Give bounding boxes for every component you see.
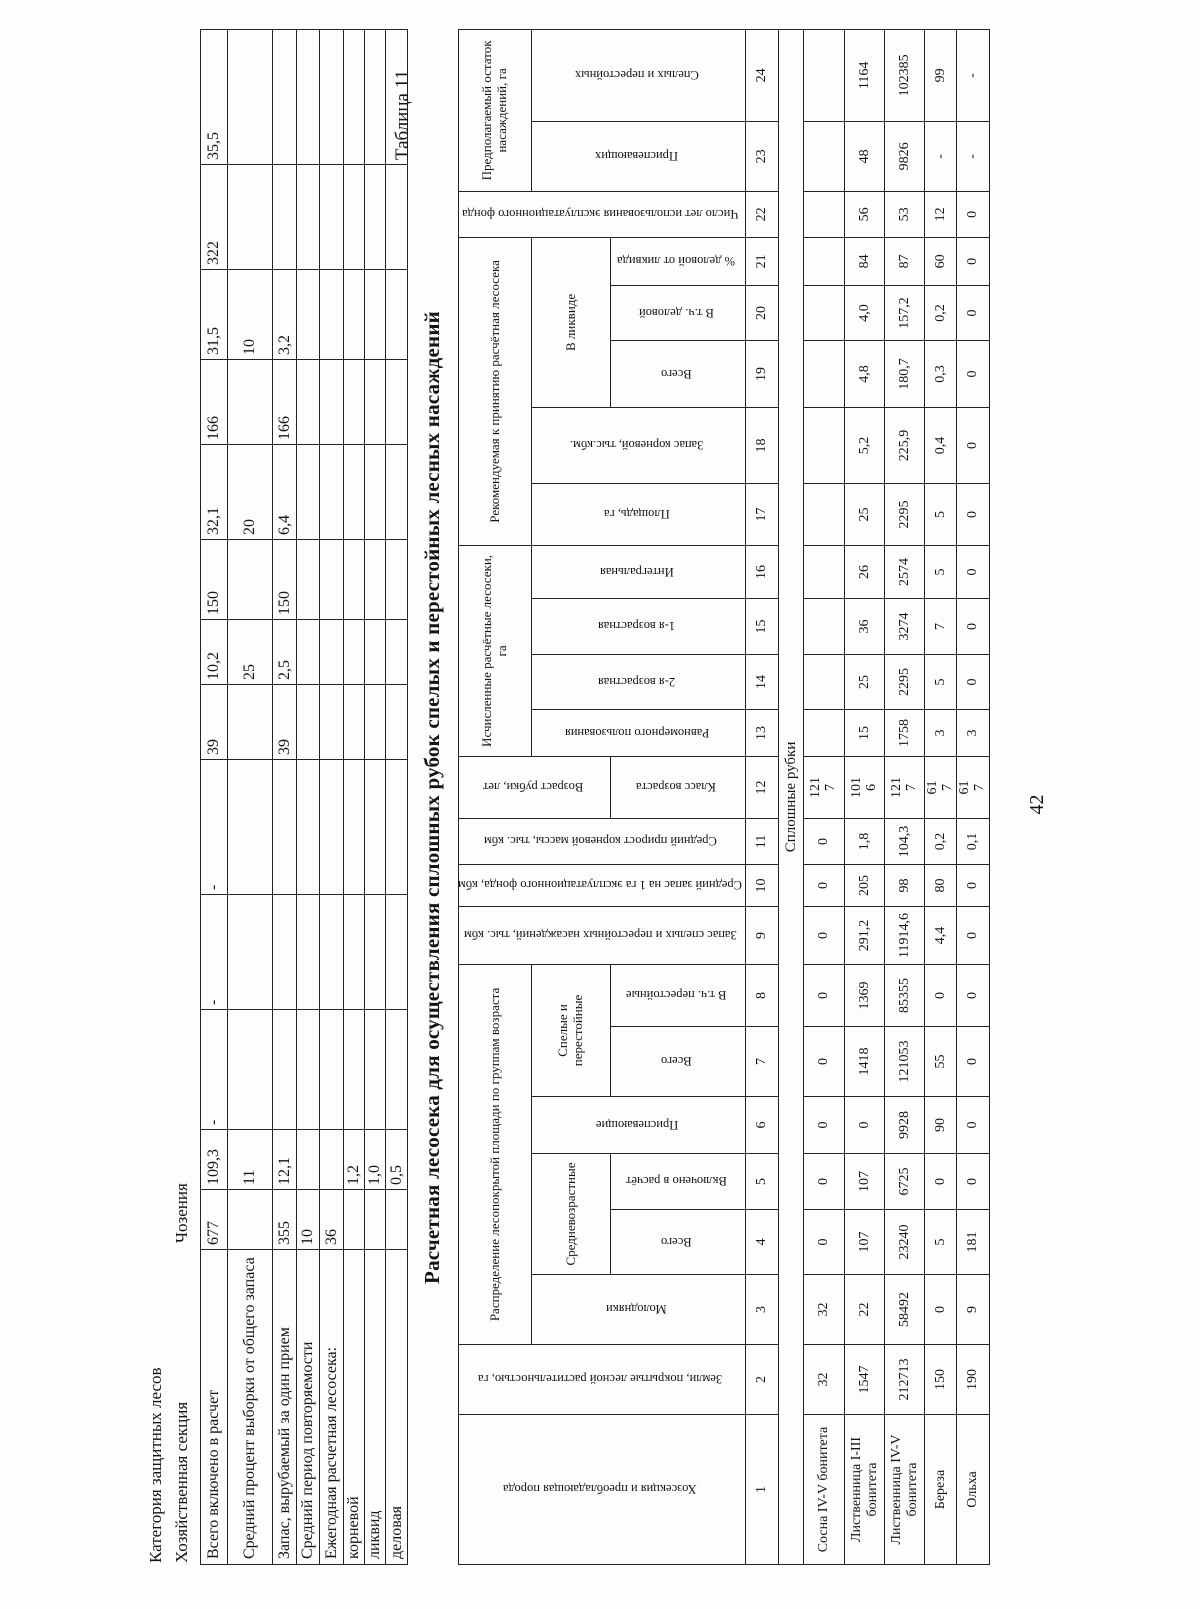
table-cell: 0 xyxy=(804,1027,845,1097)
table-cell: 0 xyxy=(957,598,989,654)
table-cell: 322 xyxy=(201,165,228,270)
table-cell: 181 xyxy=(957,1210,989,1275)
table-cell xyxy=(228,685,273,760)
table-cell xyxy=(297,685,320,760)
table-row: корневой1,2 xyxy=(344,30,365,1565)
table-cell xyxy=(386,895,408,1010)
section-label: Сплошные рубки xyxy=(779,29,804,1564)
table-cell: 121053 xyxy=(885,1027,925,1097)
table-cell: 0 xyxy=(957,407,989,483)
table-cell: 26 xyxy=(845,545,885,598)
column-number: 10 xyxy=(746,864,779,906)
table-cell: 0 xyxy=(925,1154,957,1210)
table-cell: 0,3 xyxy=(925,340,957,407)
table-cell: 7 xyxy=(925,598,957,654)
table-cell: 0 xyxy=(957,654,989,709)
header-rest-mature: Спелых и перестойных xyxy=(532,29,746,121)
table-cell: 10 xyxy=(297,1190,320,1250)
table-cell: 32 xyxy=(804,1345,845,1415)
table-row: деловая0,5 xyxy=(386,30,408,1565)
column-number: 23 xyxy=(746,121,779,191)
header-remainder-group: Предполагаемый остаток насаждений, га xyxy=(459,29,532,191)
age-class-line: 61 xyxy=(958,759,973,816)
table-cell: 0,1 xyxy=(957,818,989,864)
table-cell: 9928 xyxy=(885,1097,925,1154)
table-cell: 0 xyxy=(804,818,845,864)
header-mature-stock: Запас спелых и перестойных насаждений, т… xyxy=(459,906,746,964)
table-cell xyxy=(804,29,845,121)
column-number: 8 xyxy=(746,964,779,1026)
main-table-body: Сосна IV-V бонитета3232000000001217Листв… xyxy=(804,29,990,1564)
table-cell: 1217 xyxy=(885,756,925,818)
table-cell: 1547 xyxy=(845,1345,885,1415)
table-cell: 32,1 xyxy=(201,445,228,540)
table-cell: - xyxy=(957,121,989,191)
header-recommended-group: Рекомендуемая к принятию расчётная лесос… xyxy=(459,237,532,545)
table-cell: 1,0 xyxy=(365,1130,386,1190)
header-mature-overmature: В т.ч. перестойные xyxy=(611,964,746,1026)
row-label: ликвид xyxy=(365,1250,386,1565)
table-cell: 1,2 xyxy=(344,1130,365,1190)
table-cell: 5 xyxy=(925,545,957,598)
table-cell xyxy=(365,445,386,540)
table-cell: 0 xyxy=(957,1027,989,1097)
table-cell: 2295 xyxy=(885,483,925,545)
column-number: 21 xyxy=(746,237,779,285)
table-cell: 0 xyxy=(957,237,989,285)
table-cell xyxy=(386,360,408,445)
column-number: 1 xyxy=(746,1415,779,1565)
table-cell: 677 xyxy=(201,1190,228,1250)
table-cell: 10,2 xyxy=(201,620,228,685)
table-cell xyxy=(344,685,365,760)
column-number: 4 xyxy=(746,1210,779,1275)
section-row: Сплошные рубки xyxy=(779,29,804,1564)
species-label: Сосна IV-V бонитета xyxy=(804,1415,845,1565)
header-young: Молодняки xyxy=(532,1275,746,1345)
table-cell xyxy=(344,270,365,360)
header-forest-land: Земли, покрытые лесной растительностью, … xyxy=(459,1345,746,1415)
table-cell xyxy=(804,285,845,340)
table-cell: 0 xyxy=(804,906,845,964)
table-cell: 104,3 xyxy=(885,818,925,864)
category-heading: Категория защитных лесов xyxy=(146,1367,166,1563)
table-cell xyxy=(804,709,845,756)
column-number: 14 xyxy=(746,654,779,709)
table-cell: 157,2 xyxy=(885,285,925,340)
table-cell xyxy=(273,165,297,270)
table-cell xyxy=(320,360,344,445)
table-cell: 166 xyxy=(273,360,297,445)
table-cell: 53 xyxy=(885,191,925,237)
table-cell: 0 xyxy=(804,1210,845,1275)
table-cell: 35,5 xyxy=(201,30,228,165)
table-cell: 58492 xyxy=(885,1275,925,1345)
table-cell xyxy=(386,540,408,620)
category-table: Всего включено в расчет677109,3---3910,2… xyxy=(200,29,408,1565)
table-cell: 0,5 xyxy=(386,1130,408,1190)
category-table-body: Всего включено в расчет677109,3---3910,2… xyxy=(201,30,408,1565)
header-calc-age2: 2-я возрастная xyxy=(532,654,746,709)
table-cell: 0 xyxy=(925,1275,957,1345)
species-label: Лиственница IV-V бонитета xyxy=(885,1415,925,1565)
table-cell: 12 xyxy=(925,191,957,237)
table-cell: - xyxy=(957,29,989,121)
table-cell xyxy=(386,165,408,270)
table-cell: 0 xyxy=(804,864,845,906)
table-cell xyxy=(344,1010,365,1130)
table-cell xyxy=(297,30,320,165)
table-cell xyxy=(365,895,386,1010)
table-cell: 102385 xyxy=(885,29,925,121)
table-row: Средний период повторяемости10 xyxy=(297,30,320,1565)
age-class-line: 7 xyxy=(905,759,920,816)
table-cell xyxy=(320,685,344,760)
age-class-line: 61 xyxy=(926,759,941,816)
table-cell: 98 xyxy=(885,864,925,906)
table-cell: 0 xyxy=(804,1154,845,1210)
table-number-label: Таблица 11 xyxy=(392,70,414,160)
species-row: Береза150050905504,4800,2617357550,40,30… xyxy=(925,29,957,1564)
table-cell: 2574 xyxy=(885,545,925,598)
table-cell: 1217 xyxy=(804,756,845,818)
table-cell xyxy=(320,540,344,620)
table-cell: 617 xyxy=(957,756,989,818)
table-cell xyxy=(297,445,320,540)
table-cell: 39 xyxy=(201,685,228,760)
table-cell xyxy=(320,165,344,270)
row-label: деловая xyxy=(386,1250,408,1565)
table-cell xyxy=(344,895,365,1010)
age-class-line: 101 xyxy=(850,759,865,816)
table-cell xyxy=(228,895,273,1010)
table-cell: 56 xyxy=(845,191,885,237)
table-cell: 1369 xyxy=(845,964,885,1026)
table-cell xyxy=(365,760,386,895)
table-cell: - xyxy=(925,121,957,191)
table-cell: 225,9 xyxy=(885,407,925,483)
table-cell: 107 xyxy=(845,1210,885,1275)
section-heading: Хозяйственная секция Чозения xyxy=(172,563,192,1563)
header-middle-total: Всего xyxy=(611,1210,746,1275)
table-cell xyxy=(297,1010,320,1130)
table-cell: 15 xyxy=(845,709,885,756)
table-cell xyxy=(344,165,365,270)
table-cell xyxy=(228,165,273,270)
table-cell xyxy=(228,540,273,620)
table-cell xyxy=(386,1190,408,1250)
table-cell xyxy=(804,654,845,709)
table-cell: 4,8 xyxy=(845,340,885,407)
table-cell: 3274 xyxy=(885,598,925,654)
table-cell xyxy=(365,165,386,270)
table-cell: 0 xyxy=(804,964,845,1026)
column-number: 16 xyxy=(746,545,779,598)
column-number: 9 xyxy=(746,906,779,964)
species-row: Лиственница I-III бонитета15472210710701… xyxy=(845,29,885,1564)
table-cell xyxy=(297,1130,320,1190)
header-mature-group: Спелые и перестойные xyxy=(532,964,611,1096)
table-cell: - xyxy=(201,760,228,895)
table-cell xyxy=(320,445,344,540)
header-rec-area: Площадь, га xyxy=(532,483,746,545)
table-cell: 1164 xyxy=(845,29,885,121)
column-number: 6 xyxy=(746,1097,779,1154)
table-cell: 6,4 xyxy=(273,445,297,540)
page-title: Расчетная лесосека для осуществления спл… xyxy=(420,30,445,1565)
table-cell: 5,2 xyxy=(845,407,885,483)
table-cell: 166 xyxy=(201,360,228,445)
table-cell: 4,4 xyxy=(925,906,957,964)
table-cell: 36 xyxy=(320,1190,344,1250)
age-class-line: 6 xyxy=(865,759,880,816)
table-cell: 31,5 xyxy=(201,270,228,360)
table-cell: 22 xyxy=(845,1275,885,1345)
table-cell xyxy=(365,620,386,685)
header-years-of-use: Число лет использования эксплуатационног… xyxy=(459,191,746,237)
table-cell xyxy=(386,760,408,895)
column-number: 7 xyxy=(746,1027,779,1097)
table-row: Средний процент выборки от общего запаса… xyxy=(228,30,273,1565)
column-number: 22 xyxy=(746,191,779,237)
table-cell: 20 xyxy=(228,445,273,540)
table-cell xyxy=(297,540,320,620)
table-cell: 0 xyxy=(925,964,957,1026)
table-cell xyxy=(365,270,386,360)
table-cell xyxy=(320,760,344,895)
table-cell: 180,7 xyxy=(885,340,925,407)
table-cell: 0 xyxy=(957,191,989,237)
header-avg-stock-per-ha: Средний запас на 1 га эксплуатационного … xyxy=(459,864,746,906)
table-cell: - xyxy=(201,1010,228,1130)
table-cell xyxy=(344,540,365,620)
header-calc-age1: 1-я возрастная xyxy=(532,598,746,654)
table-cell: 23240 xyxy=(885,1210,925,1275)
table-cell xyxy=(804,545,845,598)
table-cell: 0 xyxy=(845,1097,885,1154)
table-cell: 355 xyxy=(273,1190,297,1250)
table-cell xyxy=(228,1010,273,1130)
table-cell: 25 xyxy=(228,620,273,685)
table-cell: 212713 xyxy=(885,1345,925,1415)
table-cell xyxy=(273,30,297,165)
table-cell: 291,2 xyxy=(845,906,885,964)
table-cell xyxy=(804,340,845,407)
table-cell: 25 xyxy=(845,654,885,709)
table-cell: 0 xyxy=(957,285,989,340)
table-cell xyxy=(228,760,273,895)
table-cell xyxy=(297,620,320,685)
scanned-page: Категория защитных лесов Хозяйственная с… xyxy=(0,0,1200,1609)
table-cell: 12,1 xyxy=(273,1130,297,1190)
table-cell: 150 xyxy=(201,540,228,620)
table-cell xyxy=(804,121,845,191)
table-cell xyxy=(365,360,386,445)
header-calc-uniform: Равномерного пользования xyxy=(532,709,746,756)
table-cell xyxy=(297,360,320,445)
table-cell: 11 xyxy=(228,1130,273,1190)
table-cell: 107 xyxy=(845,1154,885,1210)
header-calculated-group: Исчисленные расчётные лесосеки, га xyxy=(459,545,532,756)
table-cell: 150 xyxy=(925,1345,957,1415)
table-cell xyxy=(320,895,344,1010)
table-cell xyxy=(386,270,408,360)
table-cell xyxy=(804,237,845,285)
table-cell xyxy=(386,620,408,685)
column-number-row: 123456789101112131415161718192021222324 xyxy=(746,29,779,1564)
table-row: Запас, вырубаемый за один прием35512,139… xyxy=(273,30,297,1565)
table-cell xyxy=(297,760,320,895)
column-number: 20 xyxy=(746,285,779,340)
table-cell: 25 xyxy=(845,483,885,545)
species-row: Ольха19091810000000,16173000000000-- xyxy=(957,29,989,1564)
row-label: Средний период повторяемости xyxy=(297,1250,320,1565)
table-cell: 99 xyxy=(925,29,957,121)
table-cell: 5 xyxy=(925,483,957,545)
table-cell: - xyxy=(201,895,228,1010)
table-cell: 4,0 xyxy=(845,285,885,340)
header-calc-integral: Интегральная xyxy=(532,545,746,598)
table-cell: 0 xyxy=(957,340,989,407)
table-cell: 190 xyxy=(957,1345,989,1415)
column-number: 5 xyxy=(746,1154,779,1210)
table-cell: 85355 xyxy=(885,964,925,1026)
species-row: Сосна IV-V бонитета3232000000001217 xyxy=(804,29,845,1564)
column-number: 13 xyxy=(746,709,779,756)
column-number: 15 xyxy=(746,598,779,654)
header-mature-total: Всего xyxy=(611,1027,746,1097)
age-class-line: 7 xyxy=(941,759,956,816)
table-cell: 10 xyxy=(228,270,273,360)
table-cell: 0 xyxy=(957,545,989,598)
table-row: ликвид1,0 xyxy=(365,30,386,1565)
table-cell xyxy=(365,540,386,620)
age-class-line: 121 xyxy=(890,759,905,816)
table-cell xyxy=(365,685,386,760)
table-cell xyxy=(344,30,365,165)
table-cell xyxy=(365,1190,386,1250)
header-liquid-business: В т.ч. деловой xyxy=(611,285,746,340)
table-cell: 55 xyxy=(925,1027,957,1097)
table-cell: 0 xyxy=(957,864,989,906)
table-cell: 36 xyxy=(845,598,885,654)
table-cell xyxy=(297,895,320,1010)
table-cell: 109,3 xyxy=(201,1130,228,1190)
table-cell xyxy=(804,407,845,483)
table-cell: 3 xyxy=(925,709,957,756)
table-cell: 0 xyxy=(957,964,989,1026)
age-class-line: 7 xyxy=(973,759,988,816)
table-cell: 1758 xyxy=(885,709,925,756)
table-cell xyxy=(273,1010,297,1130)
header-age-class: Класс возраста xyxy=(611,756,746,818)
table-cell: 2295 xyxy=(885,654,925,709)
table-cell xyxy=(365,30,386,165)
table-cell: 9 xyxy=(957,1275,989,1345)
table-cell xyxy=(344,360,365,445)
table-cell: 0 xyxy=(804,1097,845,1154)
table-cell: 3 xyxy=(957,709,989,756)
header-rec-stock: Запас корневой, тыс.кбм. xyxy=(532,407,746,483)
table-cell: 150 xyxy=(273,540,297,620)
column-number: 19 xyxy=(746,340,779,407)
table-cell: 11914,6 xyxy=(885,906,925,964)
table-cell xyxy=(297,270,320,360)
age-class-line: 121 xyxy=(809,759,824,816)
table-cell: 87 xyxy=(885,237,925,285)
table-cell: 205 xyxy=(845,864,885,906)
table-cell: 0,4 xyxy=(925,407,957,483)
header-liquid-group: В ликвиде xyxy=(532,237,611,407)
table-cell: 5 xyxy=(925,654,957,709)
table-cell: 1,8 xyxy=(845,818,885,864)
table-cell: 0,2 xyxy=(925,818,957,864)
table-cell xyxy=(228,1190,273,1250)
header-liquid-percent: % деловой от ликвида xyxy=(611,237,746,285)
table-cell xyxy=(297,165,320,270)
table-row: Всего включено в расчет677109,3---3910,2… xyxy=(201,30,228,1565)
table-cell: 60 xyxy=(925,237,957,285)
row-label: Запас, вырубаемый за один прием xyxy=(273,1250,297,1565)
row-label: корневой xyxy=(344,1250,365,1565)
table-cell: 5 xyxy=(925,1210,957,1275)
table-cell xyxy=(386,445,408,540)
table-cell xyxy=(365,1010,386,1130)
column-number: 3 xyxy=(746,1275,779,1345)
page-number: 42 xyxy=(1026,0,1049,1609)
row-label: Всего включено в расчет xyxy=(201,1250,228,1565)
table-cell xyxy=(228,360,273,445)
column-number: 11 xyxy=(746,818,779,864)
row-label: Ежегодная расчетная лесосека: xyxy=(320,1250,344,1565)
table-cell xyxy=(344,1190,365,1250)
header-middle-included: Включено в расчёт xyxy=(611,1154,746,1210)
table-cell xyxy=(344,620,365,685)
table-cell: 84 xyxy=(845,237,885,285)
table-cell xyxy=(804,191,845,237)
header-rest-ripening: Приспевающих xyxy=(532,121,746,191)
main-table: Хозсекция и преобладающая порода Земли, … xyxy=(458,29,990,1565)
table-row: Ежегодная расчетная лесосека:36 xyxy=(320,30,344,1565)
table-cell: 0 xyxy=(957,906,989,964)
column-number: 18 xyxy=(746,407,779,483)
table-cell xyxy=(344,445,365,540)
table-cell xyxy=(804,483,845,545)
table-cell: 2,5 xyxy=(273,620,297,685)
header-avg-growth: Средний прирост корневой массы, тыс. кбм xyxy=(459,818,746,864)
row-label: Средний процент выборки от общего запаса xyxy=(228,1250,273,1565)
table-cell: 1016 xyxy=(845,756,885,818)
header-row-groups: Хозсекция и преобладающая порода Земли, … xyxy=(459,29,532,1564)
species-row: Лиственница IV-V бонитета212713584922324… xyxy=(885,29,925,1564)
table-cell: 1418 xyxy=(845,1027,885,1097)
table-cell xyxy=(320,620,344,685)
table-cell: 90 xyxy=(925,1097,957,1154)
table-cell: 6725 xyxy=(885,1154,925,1210)
header-ripening: Приспевающие xyxy=(532,1097,746,1154)
table-cell xyxy=(320,270,344,360)
header-cutting-age: Возраст рубки, лет xyxy=(459,756,611,818)
species-label: Береза xyxy=(925,1415,957,1565)
table-cell: 9826 xyxy=(885,121,925,191)
table-cell: 39 xyxy=(273,685,297,760)
table-cell: 617 xyxy=(925,756,957,818)
header-middle-group: Средневозрастные xyxy=(532,1154,611,1275)
table-cell xyxy=(228,30,273,165)
table-cell: 0 xyxy=(957,1154,989,1210)
table-cell xyxy=(344,760,365,895)
age-class-line: 7 xyxy=(824,759,839,816)
